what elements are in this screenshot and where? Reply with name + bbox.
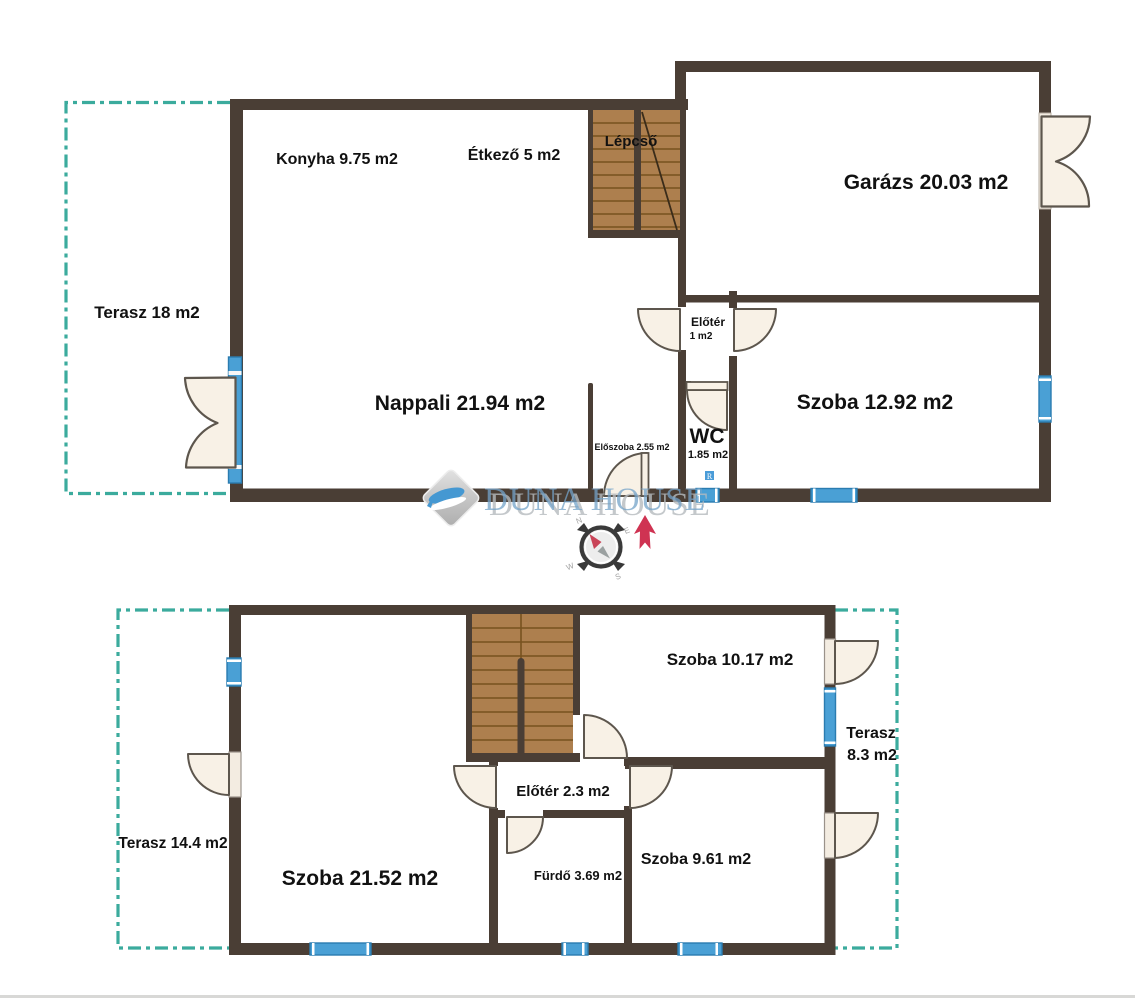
svg-text:Terasz: Terasz bbox=[846, 725, 896, 742]
svg-text:Szoba 21.52 m2: Szoba 21.52 m2 bbox=[282, 867, 438, 890]
svg-text:Előtér 2.3 m2: Előtér 2.3 m2 bbox=[516, 783, 609, 800]
svg-text:Étkező 5 m2: Étkező 5 m2 bbox=[468, 145, 561, 164]
svg-text:Konyha 9.75 m2: Konyha 9.75 m2 bbox=[276, 151, 398, 168]
svg-text:8.3 m2: 8.3 m2 bbox=[847, 747, 897, 764]
svg-text:Szoba 9.61 m2: Szoba 9.61 m2 bbox=[641, 851, 751, 868]
svg-text:R: R bbox=[707, 472, 713, 481]
svg-text:WC: WC bbox=[690, 425, 725, 448]
svg-text:Nappali 21.94 m2: Nappali 21.94 m2 bbox=[375, 392, 545, 415]
svg-text:1.85 m2: 1.85 m2 bbox=[688, 449, 728, 461]
svg-text:Terasz 18 m2: Terasz 18 m2 bbox=[94, 303, 200, 322]
svg-text:Lépcső: Lépcső bbox=[605, 133, 658, 150]
svg-text:DUNA HOUSE: DUNA HOUSE bbox=[484, 482, 706, 518]
svg-text:Szoba 12.92 m2: Szoba 12.92 m2 bbox=[797, 391, 953, 414]
svg-text:Terasz 14.4 m2: Terasz 14.4 m2 bbox=[118, 835, 227, 852]
svg-text:1 m2: 1 m2 bbox=[690, 331, 713, 342]
svg-text:Szoba 10.17 m2: Szoba 10.17 m2 bbox=[667, 650, 794, 669]
svg-text:Fürdő 3.69 m2: Fürdő 3.69 m2 bbox=[534, 868, 622, 883]
svg-text:Előszoba 2.55 m2: Előszoba 2.55 m2 bbox=[594, 442, 669, 452]
svg-text:Garázs 20.03 m2: Garázs 20.03 m2 bbox=[844, 171, 1009, 194]
svg-text:Előtér: Előtér bbox=[691, 315, 725, 329]
